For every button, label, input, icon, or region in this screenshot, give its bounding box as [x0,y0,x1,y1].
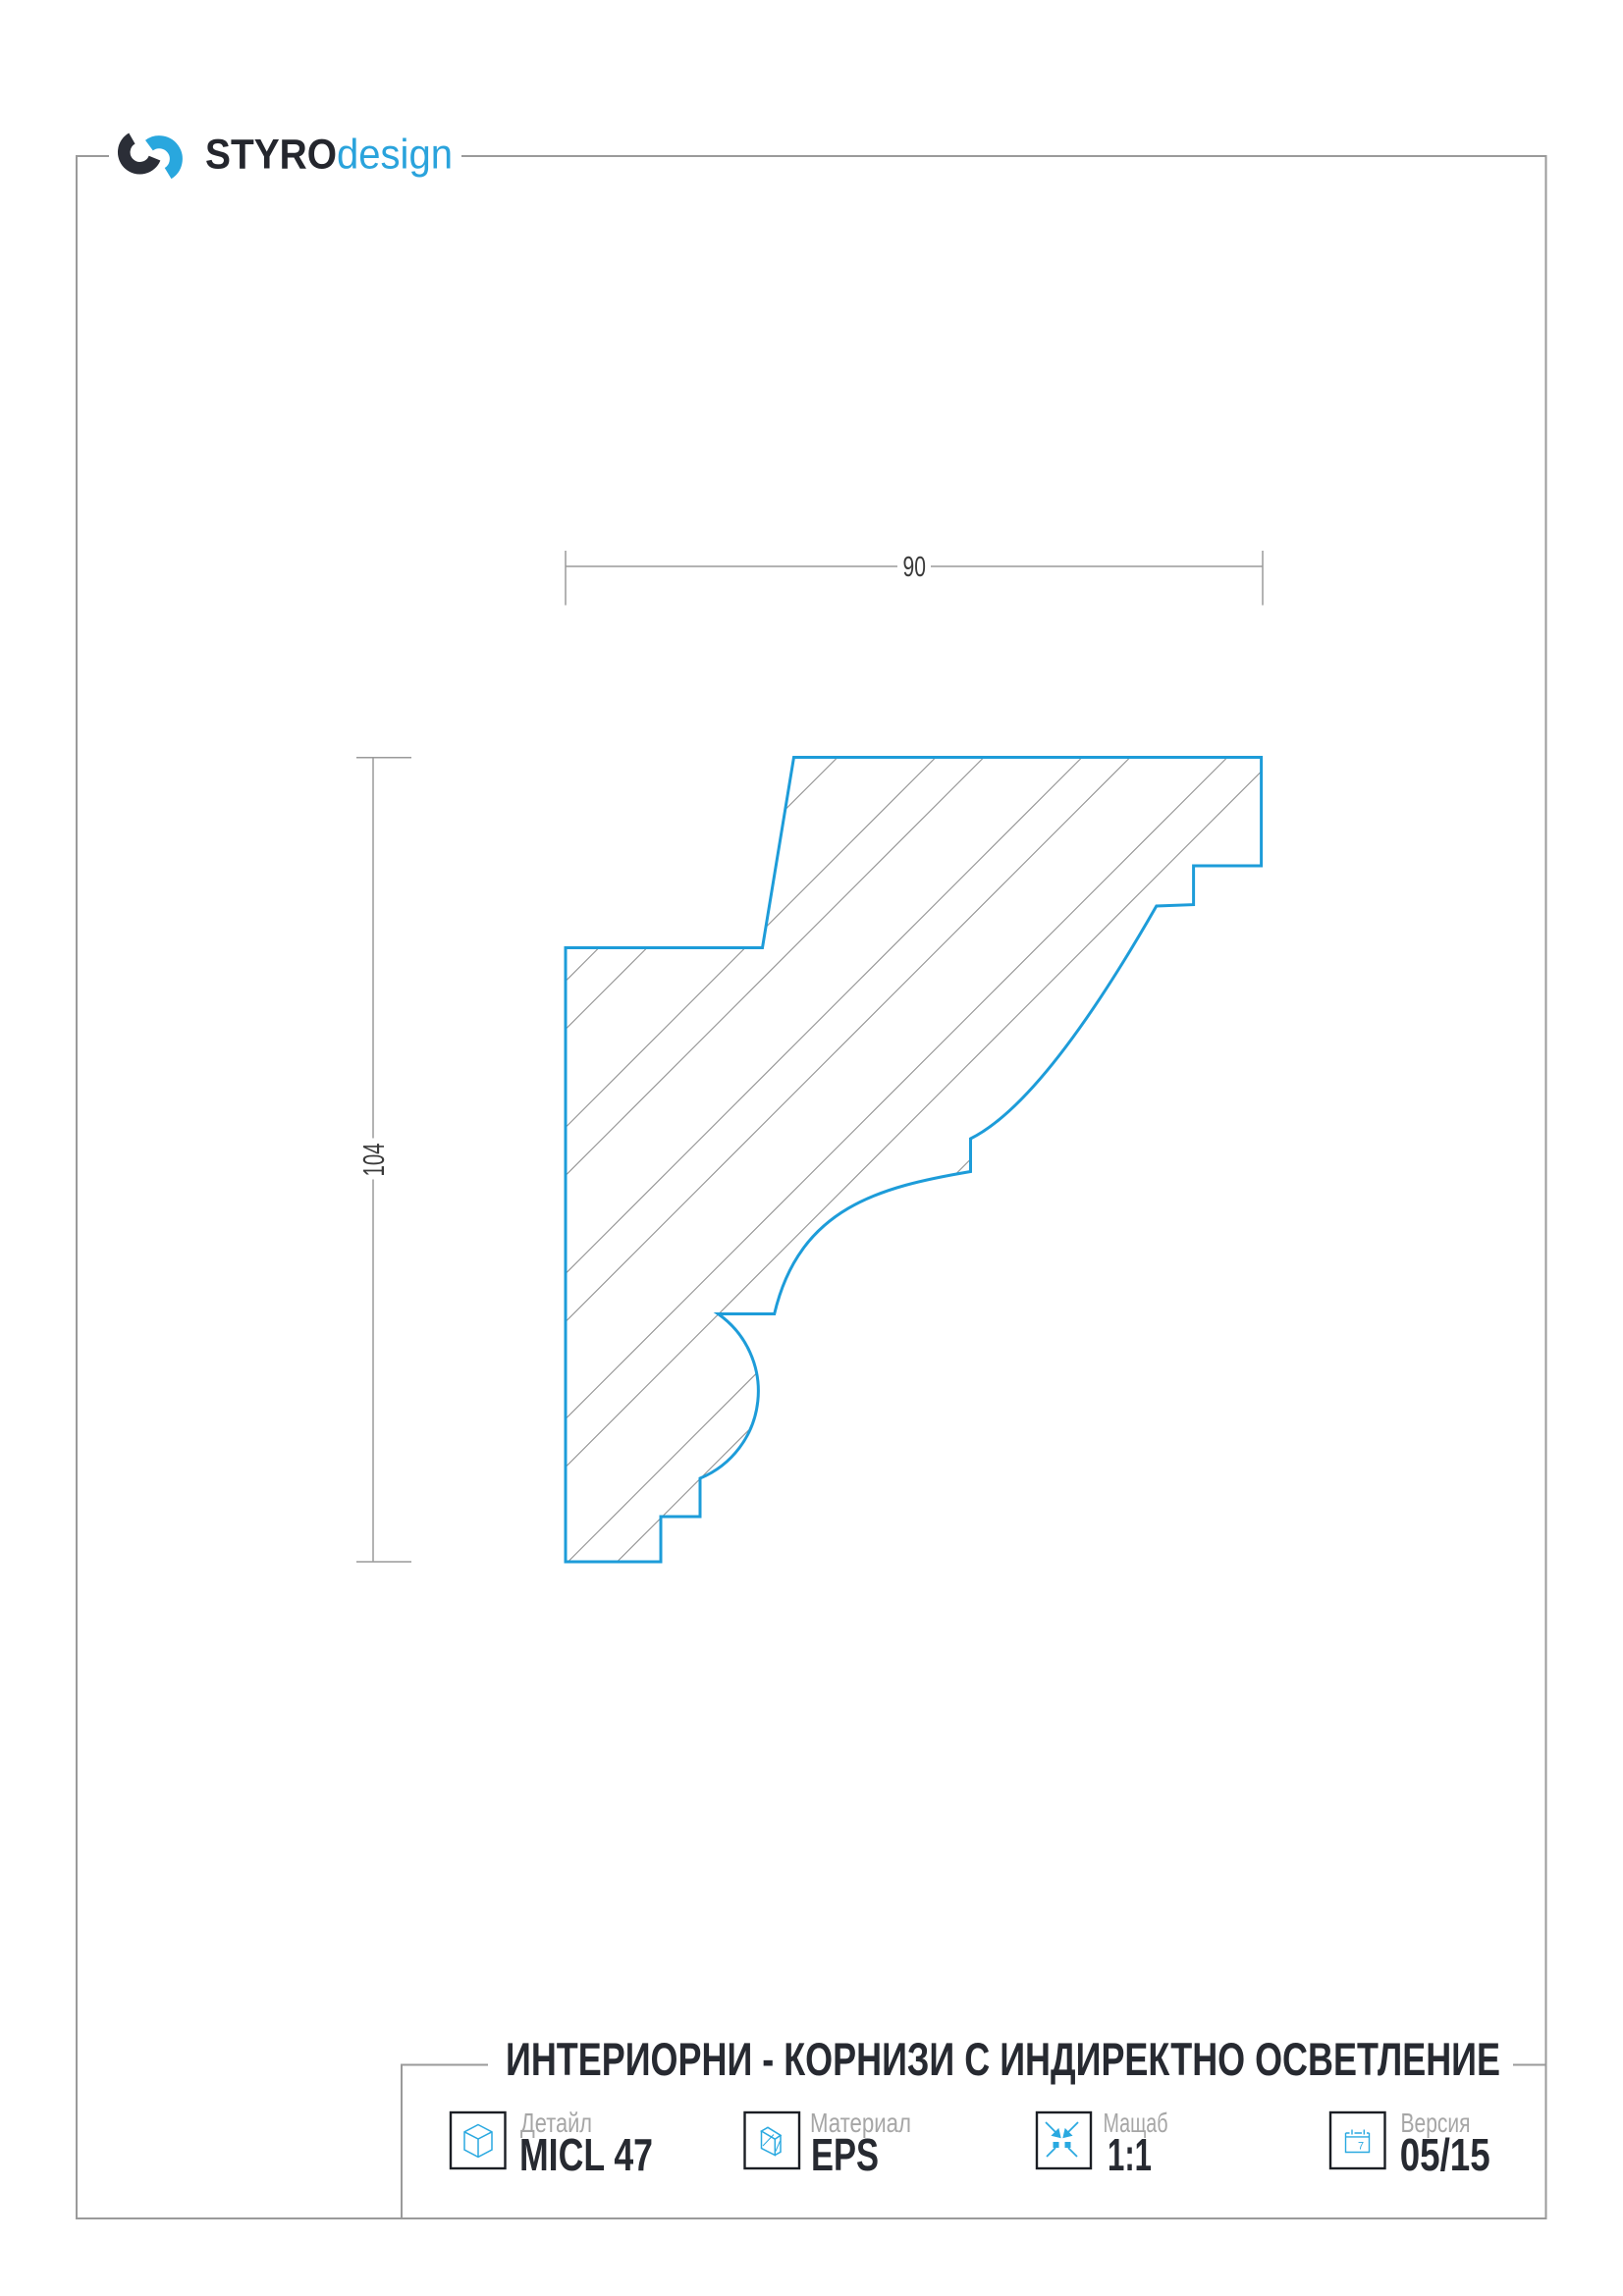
svg-text:EPS: EPS [811,2129,879,2180]
svg-text:ИНТЕРИОРНИ - КОРНИЗИ С ИНДИРЕК: ИНТЕРИОРНИ - КОРНИЗИ С ИНДИРЕКТНО ОСВЕТЛ… [506,2033,1500,2085]
svg-text:STYRO: STYRO [205,132,337,179]
svg-text:design: design [337,132,453,179]
svg-text:MICL 47: MICL 47 [519,2129,653,2180]
svg-text:1:1: 1:1 [1108,2129,1152,2180]
svg-text:104: 104 [356,1144,391,1177]
svg-text:7: 7 [1358,2141,1364,2153]
svg-text:90: 90 [903,552,926,583]
svg-text:05/15: 05/15 [1400,2129,1490,2180]
